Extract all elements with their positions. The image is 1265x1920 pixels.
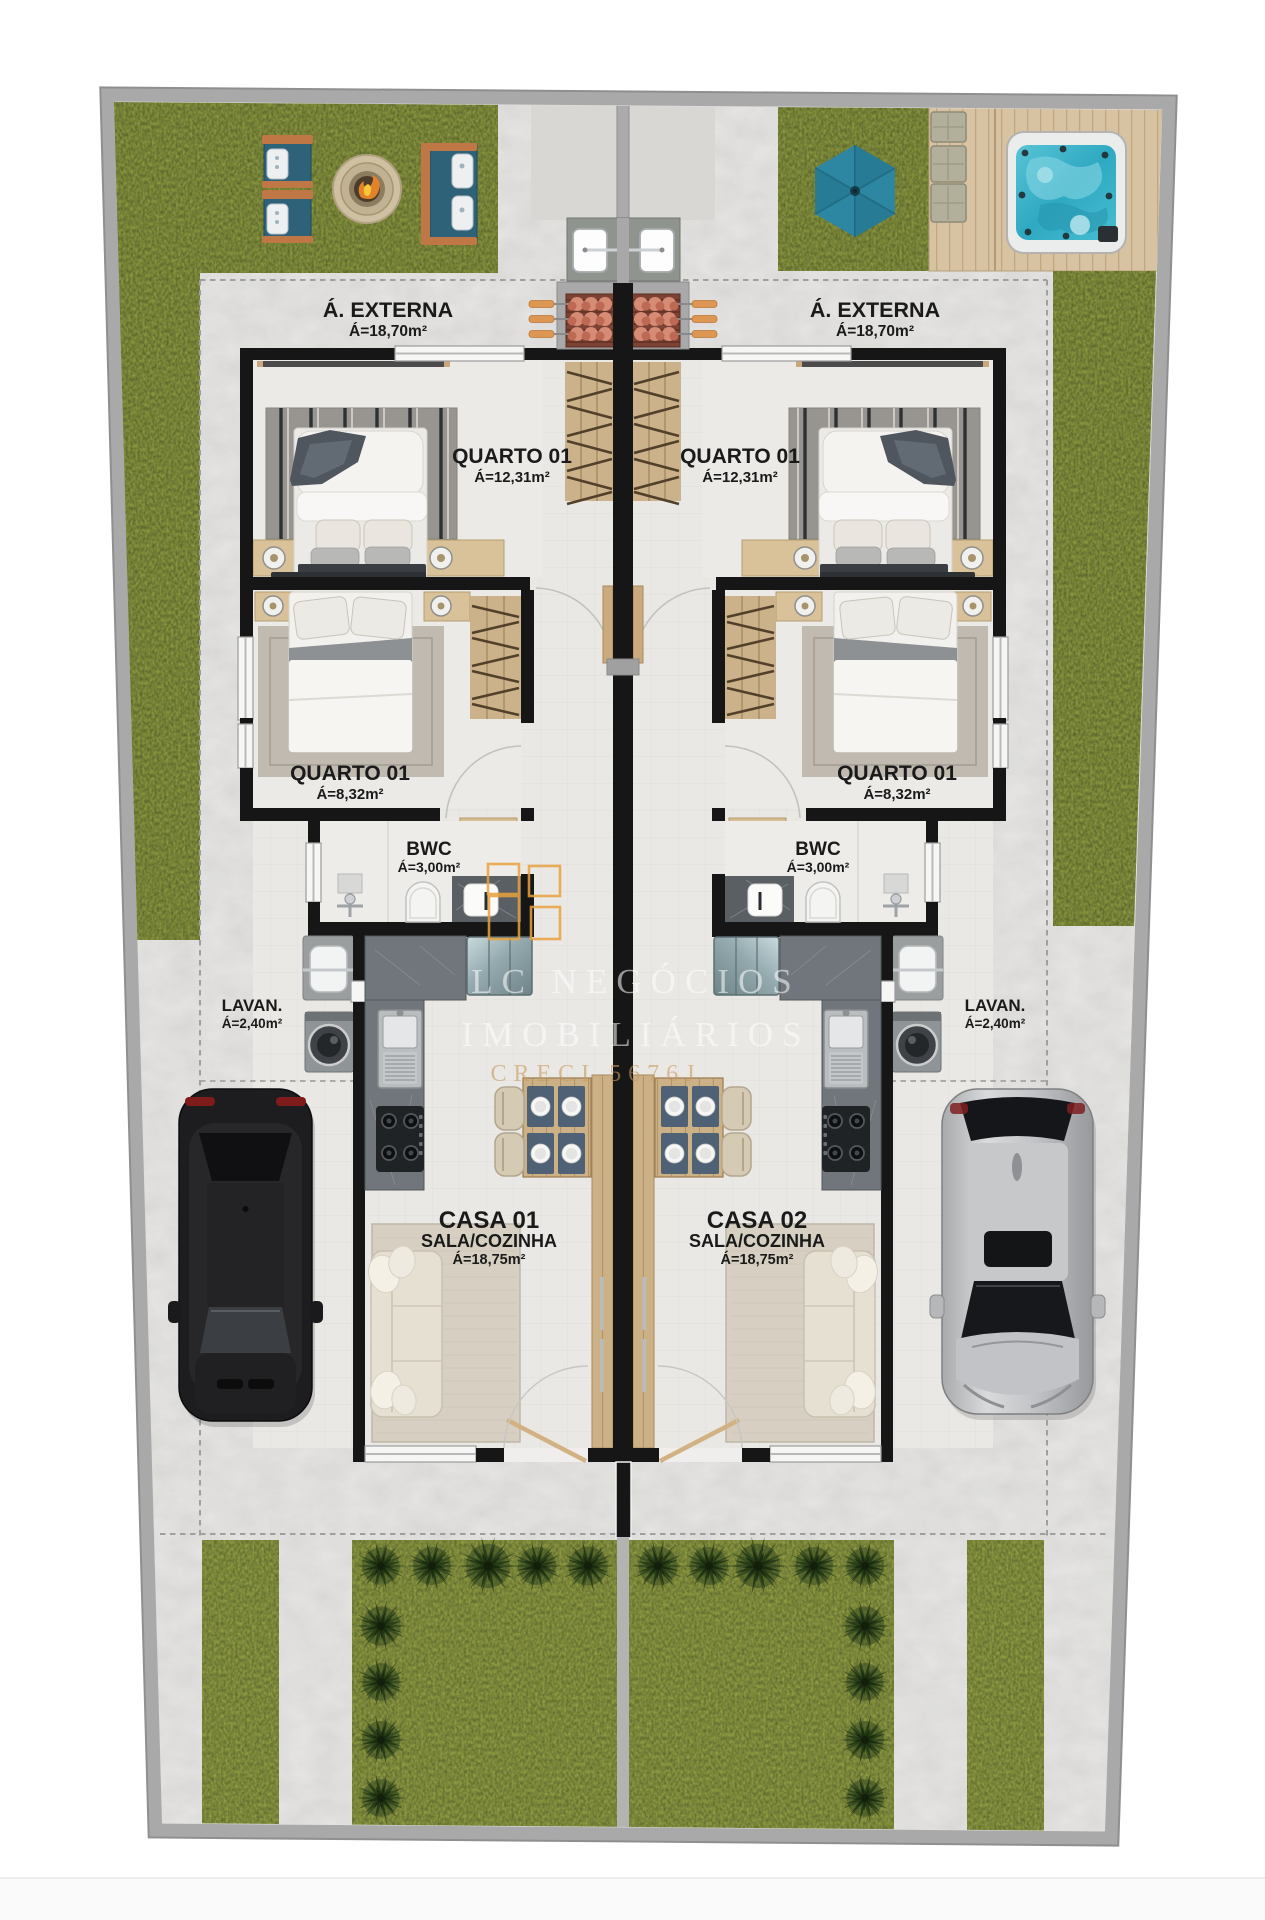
svg-text:LAVAN.: LAVAN. [965,996,1026,1015]
svg-text:QUARTO 01: QUARTO 01 [680,445,800,468]
svg-text:Á=12,31m²: Á=12,31m² [702,469,777,486]
svg-text:Á=2,40m²: Á=2,40m² [222,1016,283,1031]
svg-text:SALA/COZINHA: SALA/COZINHA [689,1231,825,1251]
svg-text:Á=18,75m²: Á=18,75m² [453,1251,526,1268]
svg-text:LAVAN.: LAVAN. [222,996,283,1015]
svg-text:Á=12,31m²: Á=12,31m² [474,469,549,486]
svg-text:CASA 02: CASA 02 [707,1207,807,1234]
svg-text:QUARTO 01: QUARTO 01 [290,762,410,785]
svg-text:Á=2,40m²: Á=2,40m² [965,1016,1026,1031]
svg-text:QUARTO 01: QUARTO 01 [452,445,572,468]
svg-text:Á=3,00m²: Á=3,00m² [398,859,461,875]
svg-text:Á=8,32m²: Á=8,32m² [316,786,383,803]
svg-text:Á. EXTERNA: Á. EXTERNA [323,297,453,322]
svg-text:SALA/COZINHA: SALA/COZINHA [421,1231,557,1251]
svg-text:CASA 01: CASA 01 [439,1207,539,1234]
svg-text:CRECI 5676J: CRECI 5676J [490,1061,701,1087]
svg-text:Á=18,70m²: Á=18,70m² [349,323,427,340]
svg-text:Á. EXTERNA: Á. EXTERNA [810,297,940,322]
svg-text:LC NEGÓCIOS: LC NEGÓCIOS [471,961,800,1001]
svg-text:Á=8,32m²: Á=8,32m² [863,786,930,803]
svg-text:QUARTO 01: QUARTO 01 [837,762,957,785]
svg-text:Á=3,00m²: Á=3,00m² [787,859,850,875]
svg-text:Á=18,70m²: Á=18,70m² [836,323,914,340]
svg-text:BWC: BWC [406,839,452,860]
svg-text:Á=18,75m²: Á=18,75m² [721,1251,794,1268]
svg-text:BWC: BWC [795,839,841,860]
svg-text:IMOBILIÁRIOS: IMOBILIÁRIOS [461,1015,810,1054]
